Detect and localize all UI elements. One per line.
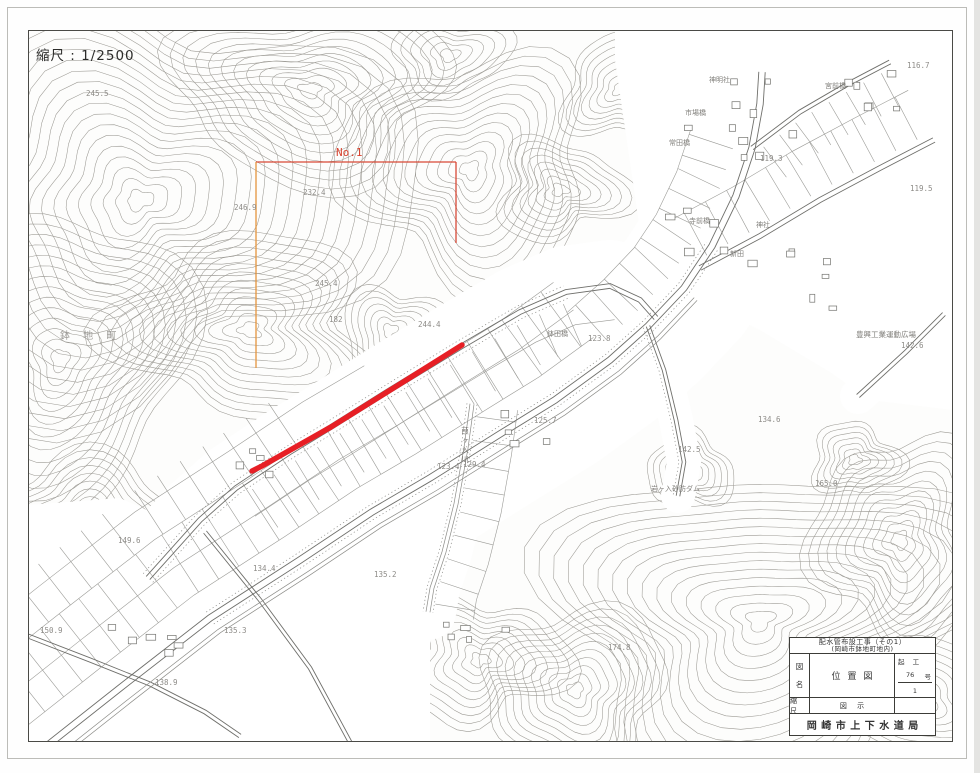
organization-name: 岡崎市上下水道局 (790, 714, 935, 735)
survey-area-label: No.1 (336, 146, 363, 159)
scale-empty-cell (894, 698, 935, 713)
scan-edge (974, 0, 980, 773)
sheet-name-label-cell: 図 名 (790, 654, 810, 697)
map-frame (28, 30, 953, 742)
scale-note: 縮尺 : 1/2500 (36, 44, 135, 64)
title-block: 配水管布設工事（その1） (岡崎市鉢地町地内) 図 名 位置図 起 工 76 号… (789, 637, 936, 736)
title-block-main-row: 図 名 位置図 起 工 76 号 1 (790, 654, 935, 698)
work-order-label: 起 工 (898, 656, 932, 666)
drawing-sheet: 縮尺 : 1/2500 No.1 鉢 地 町 245.5 246.9 232.4… (0, 0, 980, 773)
project-location: (岡崎市鉢地町地内) (790, 646, 935, 653)
title-block-header: 配水管布設工事（その1） (岡崎市鉢地町地内) (790, 638, 935, 654)
map-canvas (29, 31, 952, 741)
scale-value-cell: 図 示 (810, 698, 894, 713)
sheet-name-label-bottom: 名 (796, 679, 804, 690)
drawing-name-cell: 位置図 (810, 654, 894, 697)
work-order-suffix: 号 (925, 671, 932, 681)
work-order-sub: 1 (898, 687, 932, 695)
sheet-name-label-top: 図 (796, 661, 804, 672)
work-order-cell: 起 工 76 号 1 (894, 654, 935, 697)
title-block-scale-row: 縮 尺 図 示 (790, 698, 935, 714)
work-order-number: 76 (906, 671, 914, 681)
scale-label-cell: 縮 尺 (790, 698, 810, 713)
